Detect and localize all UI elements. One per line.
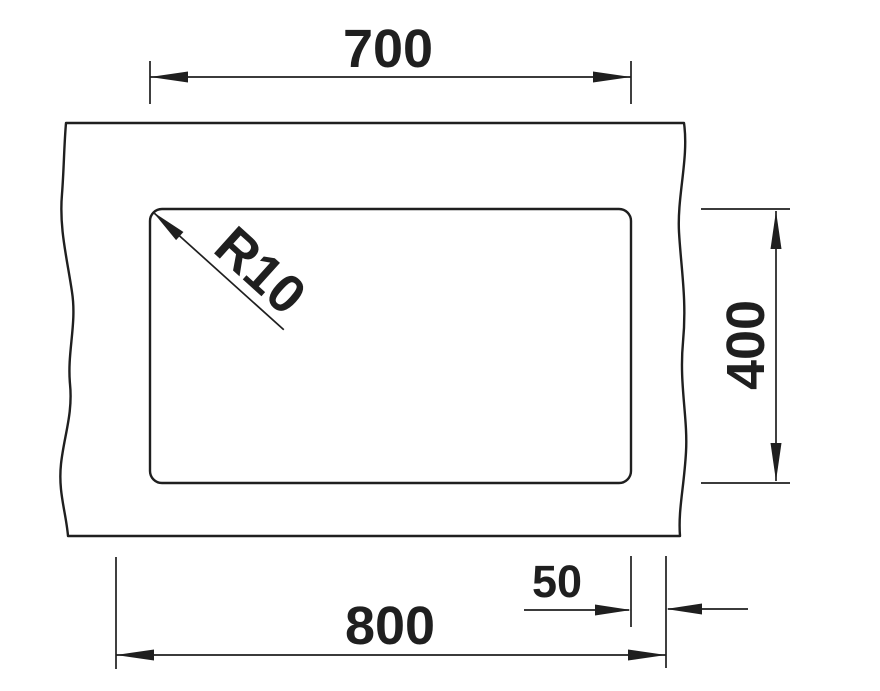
- arrowhead-right: [628, 650, 666, 661]
- arrowhead-left: [150, 72, 188, 83]
- dimension-label-700: 700: [343, 19, 433, 79]
- dimension-drawing-svg: R10 700 400 50: [0, 0, 880, 691]
- arrowhead-up: [771, 211, 782, 249]
- arrowhead-right: [593, 72, 631, 83]
- dimension-label-50: 50: [532, 556, 582, 607]
- dimension-cutout-width: 700: [150, 19, 631, 104]
- dimension-cabinet-width: 800: [116, 556, 666, 669]
- dimension-label-800: 800: [345, 596, 435, 656]
- arrowhead-right-pointing: [595, 605, 631, 616]
- dimension-cutout-depth: 400: [701, 209, 790, 483]
- dimension-label-400: 400: [716, 300, 776, 390]
- arrowhead-left: [116, 650, 154, 661]
- arrowhead-left-pointing: [666, 604, 702, 615]
- arrowhead-down: [771, 443, 782, 481]
- technical-drawing-canvas: R10 700 400 50: [0, 0, 880, 691]
- dimension-edge-offset: 50: [524, 556, 748, 627]
